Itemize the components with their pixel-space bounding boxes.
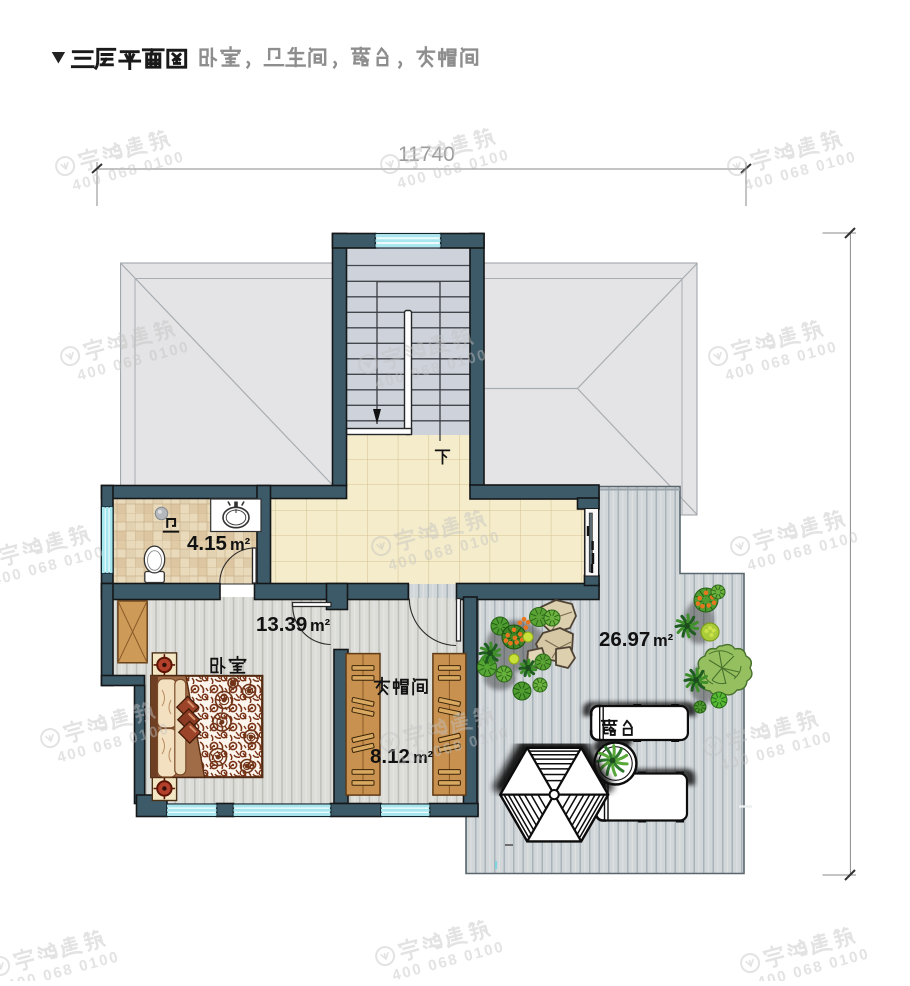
svg-text:4.15: 4.15: [187, 532, 227, 555]
svg-text:26.97: 26.97: [599, 628, 650, 651]
svg-text:m²: m²: [230, 536, 251, 554]
svg-text:13.39: 13.39: [256, 613, 307, 636]
svg-text:m²: m²: [310, 617, 331, 635]
svg-text:m²: m²: [653, 632, 674, 650]
